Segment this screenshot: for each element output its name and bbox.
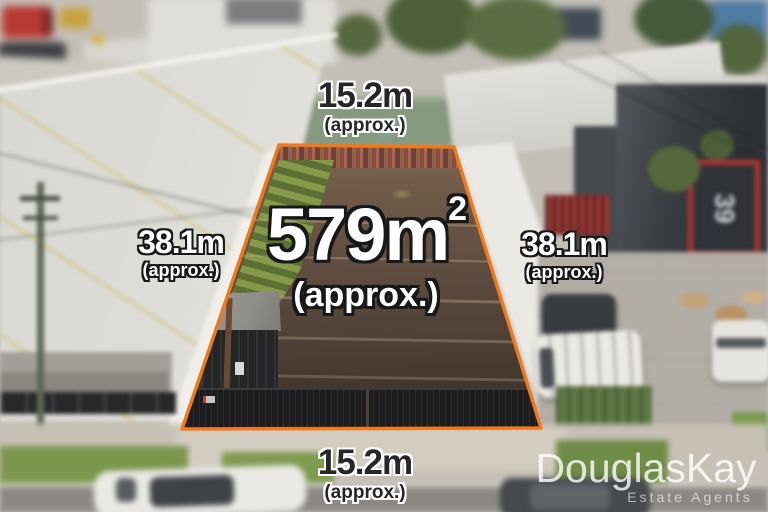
dimension-qualifier: (approx.) <box>521 263 607 281</box>
agency-name: DouglasKay <box>535 445 756 491</box>
dimension-label-left-depth: 38.1m (approx.) <box>138 226 224 279</box>
dimension-value: 15.2m <box>318 445 412 480</box>
dimension-value: 15.2m <box>318 78 412 113</box>
dimension-value: 38.1m <box>138 226 224 258</box>
agency-watermark: DouglasKay Estate Agents <box>528 448 764 504</box>
dimension-qualifier: (approx.) <box>318 116 412 135</box>
area-qualifier: (approx.) <box>267 278 465 312</box>
area-superscript: 2 <box>448 190 465 228</box>
dimension-label-top-frontage: 15.2m (approx.) <box>318 78 412 135</box>
agency-tagline: Estate Agents <box>572 490 768 504</box>
dimension-qualifier: (approx.) <box>138 261 224 279</box>
dimension-label-bottom-frontage: 15.2m (approx.) <box>318 445 412 502</box>
area-label: 579m2 (approx.) <box>267 198 465 312</box>
area-value: 579m2 <box>267 198 465 272</box>
dimension-label-right-depth: 38.1m (approx.) <box>521 228 607 281</box>
area-value-text: 579m <box>267 193 448 276</box>
dimension-value: 38.1m <box>521 228 607 260</box>
aerial-photo: 39 <box>0 0 768 512</box>
dimension-qualifier: (approx.) <box>318 483 412 502</box>
